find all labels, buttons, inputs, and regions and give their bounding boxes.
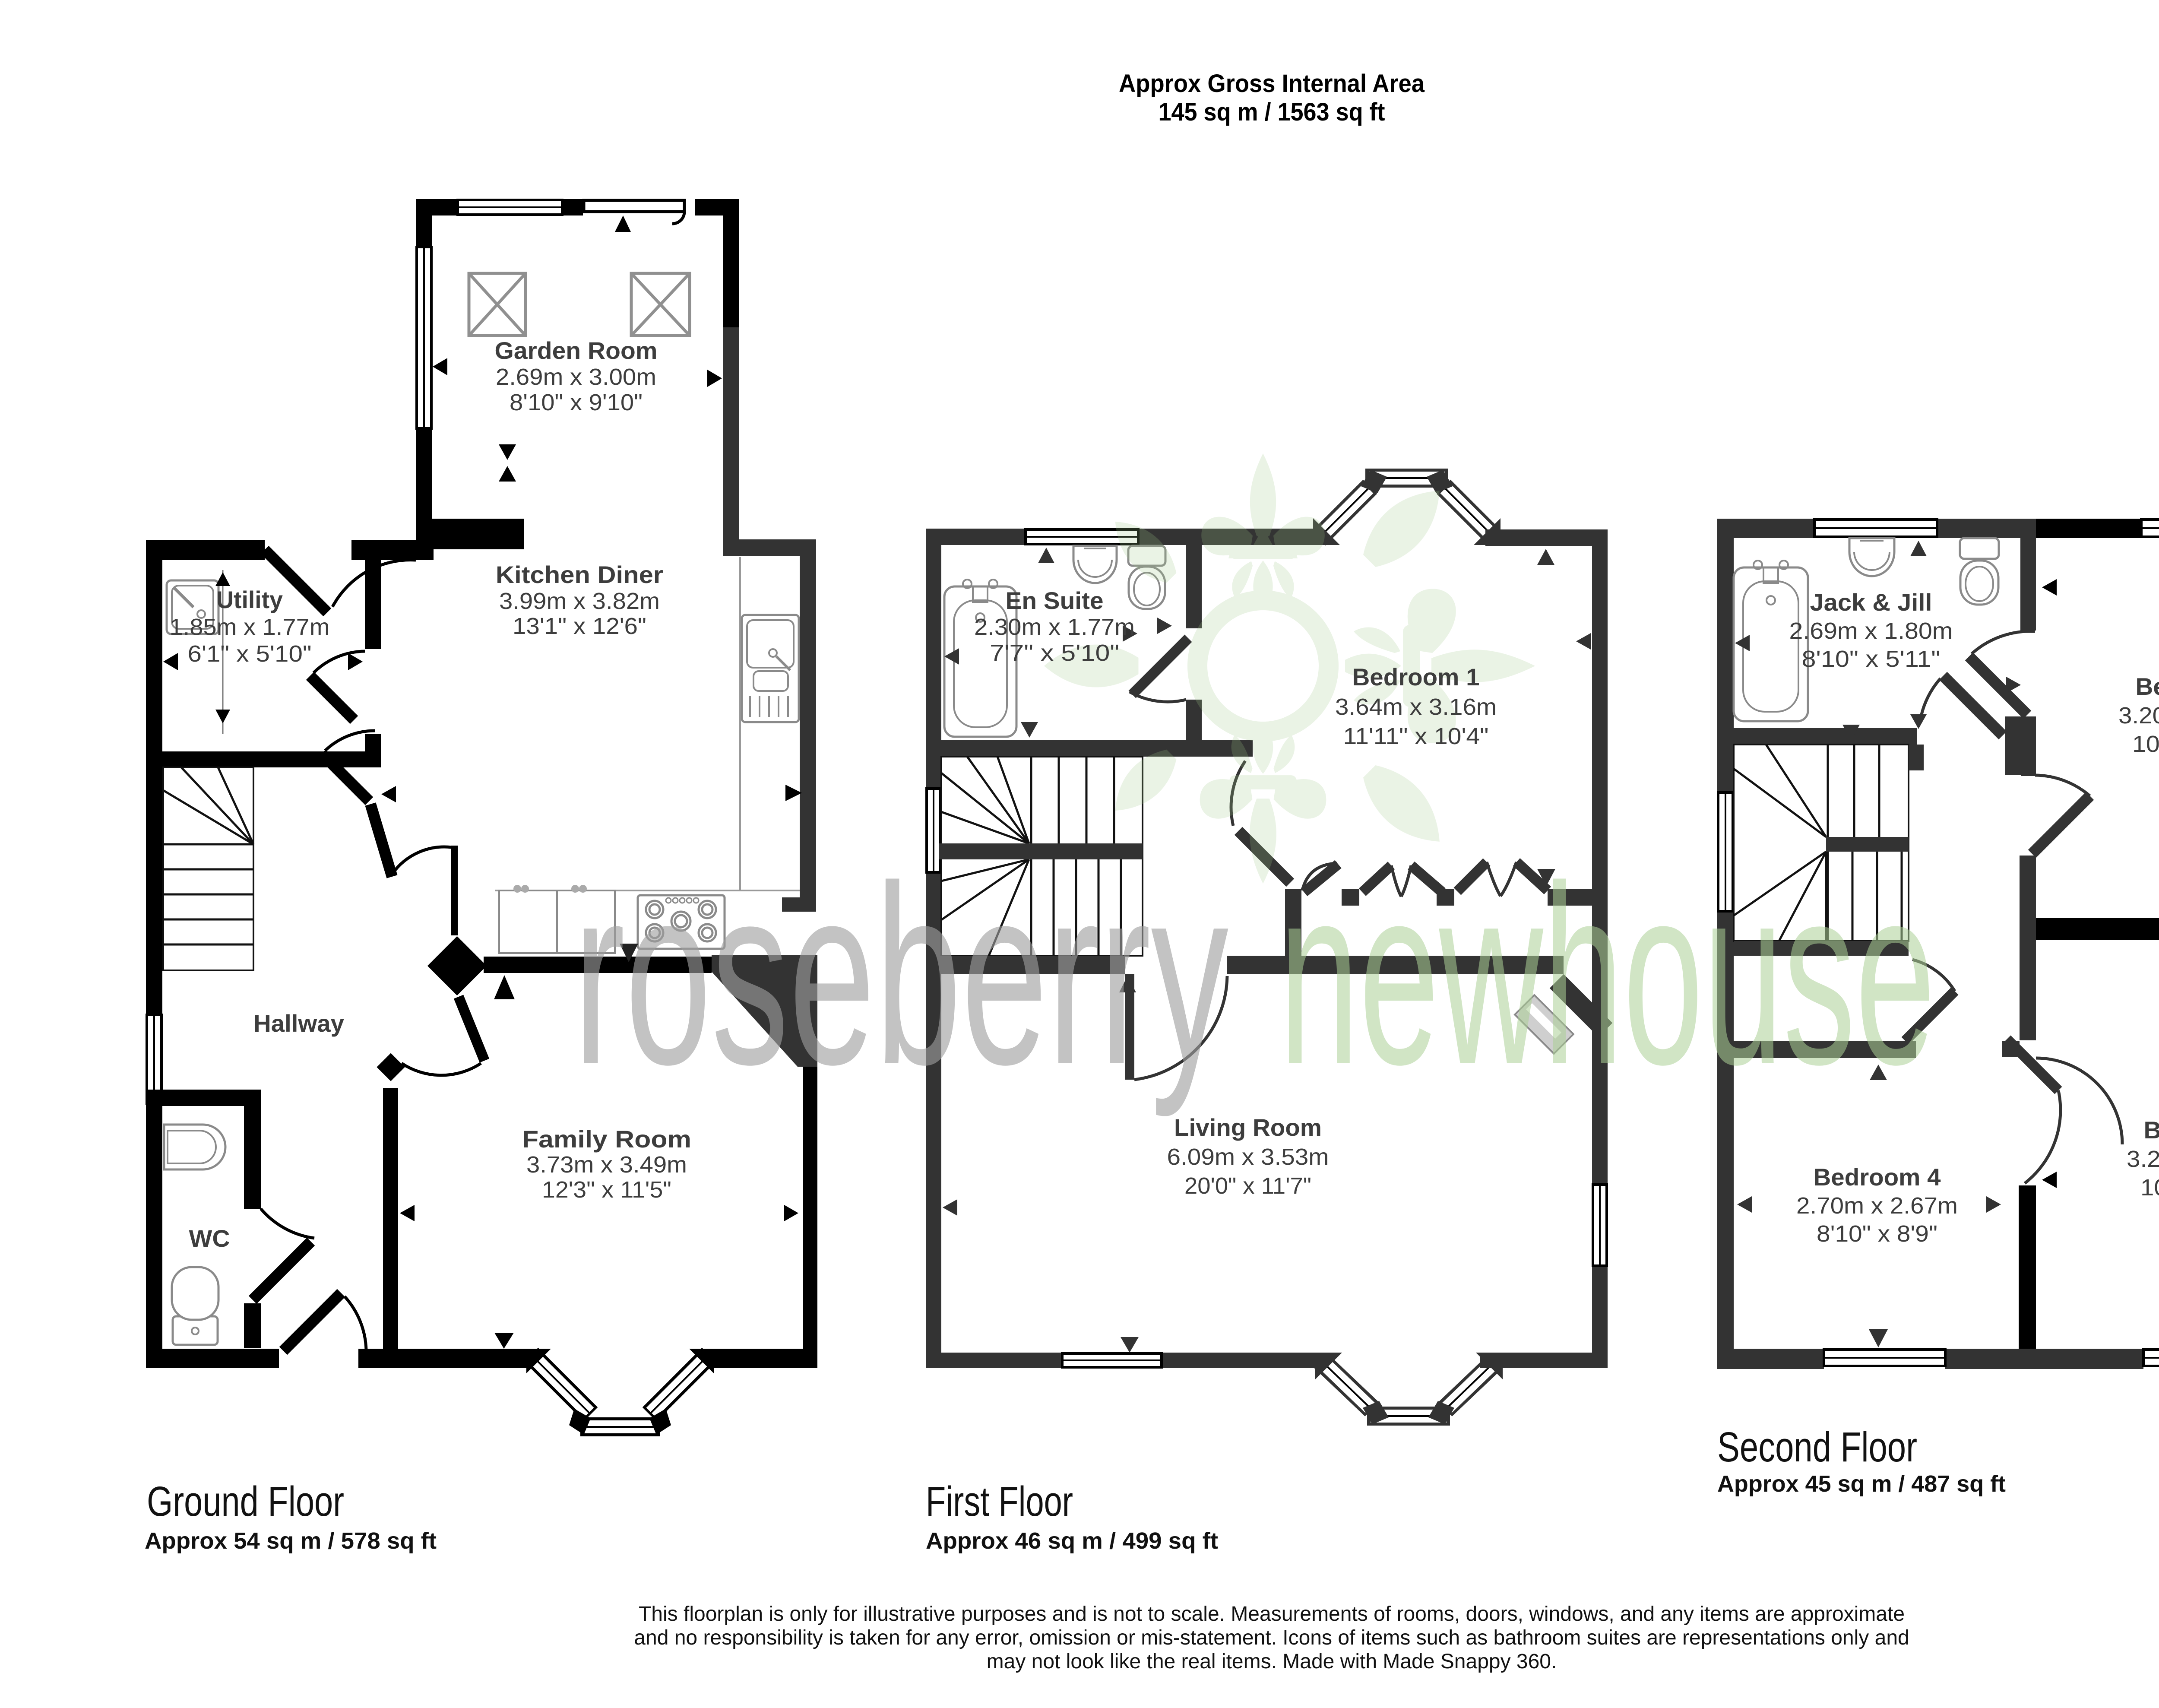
svg-text:First Floor: First Floor xyxy=(926,1478,1073,1525)
svg-text:3.20m x 3.55m: 3.20m x 3.55m xyxy=(2118,703,2159,729)
svg-text:Utility: Utility xyxy=(216,586,283,613)
svg-text:Approx 45 sq m / 487 sq ft: Approx 45 sq m / 487 sq ft xyxy=(1717,1471,2006,1497)
svg-text:may not look like the real ite: may not look like the real items. Made w… xyxy=(987,1650,1557,1673)
svg-text:Approx 54 sq m / 578 sq ft: Approx 54 sq m / 578 sq ft xyxy=(145,1528,437,1554)
svg-text:Ground Floor: Ground Floor xyxy=(147,1478,344,1525)
svg-text:2.69m x 1.80m: 2.69m x 1.80m xyxy=(1789,618,1953,644)
svg-text:Approx Gross Internal Area: Approx Gross Internal Area xyxy=(1119,70,1425,98)
svg-text:6.09m x 3.53m: 6.09m x 3.53m xyxy=(1167,1144,1329,1170)
svg-text:7'7" x 5'10": 7'7" x 5'10" xyxy=(990,640,1119,666)
svg-text:11'11" x 10'4": 11'11" x 10'4" xyxy=(1343,723,1489,749)
svg-text:and no responsibility is taken: and no responsibility is taken for any e… xyxy=(634,1626,1909,1649)
svg-text:Bedroom 2: Bedroom 2 xyxy=(2144,1116,2159,1144)
svg-text:1.85m x 1.77m: 1.85m x 1.77m xyxy=(170,614,330,640)
svg-text:2.30m x 1.77m: 2.30m x 1.77m xyxy=(974,614,1135,640)
svg-text:En Suite: En Suite xyxy=(1006,587,1104,614)
svg-text:13'1" x 12'6": 13'1" x 12'6" xyxy=(513,613,646,639)
svg-text:newhouse: newhouse xyxy=(1279,833,1935,1118)
svg-text:145 sq m / 1563 sq ft: 145 sq m / 1563 sq ft xyxy=(1159,98,1385,126)
svg-text:roseberry: roseberry xyxy=(573,833,1228,1119)
svg-text:8'10" x 9'10": 8'10" x 9'10" xyxy=(510,390,643,415)
svg-text:10'6" x 11'8": 10'6" x 11'8" xyxy=(2132,731,2159,757)
svg-text:Jack & Jill: Jack & Jill xyxy=(1810,589,1932,616)
svg-text:Second Floor: Second Floor xyxy=(1717,1423,1917,1470)
svg-text:10'6" x 12'3": 10'6" x 12'3" xyxy=(2140,1175,2159,1201)
svg-text:20'0" x 11'7": 20'0" x 11'7" xyxy=(1184,1173,1311,1199)
svg-text:Approx 46 sq m / 499 sq ft: Approx 46 sq m / 499 sq ft xyxy=(926,1528,1218,1554)
svg-text:2.69m x 3.00m: 2.69m x 3.00m xyxy=(496,364,656,390)
svg-text:3.99m x 3.82m: 3.99m x 3.82m xyxy=(499,588,660,614)
svg-text:8'10" x 8'9": 8'10" x 8'9" xyxy=(1817,1221,1937,1247)
svg-text:3.64m x 3.16m: 3.64m x 3.16m xyxy=(1335,694,1497,720)
svg-text:Family Room: Family Room xyxy=(522,1125,691,1153)
svg-text:Kitchen Diner: Kitchen Diner xyxy=(496,561,663,588)
svg-text:6'1" x 5'10": 6'1" x 5'10" xyxy=(188,641,312,667)
svg-text:3.20m x 3.73m: 3.20m x 3.73m xyxy=(2127,1146,2159,1172)
svg-text:12'3" x 11'5": 12'3" x 11'5" xyxy=(542,1177,671,1203)
svg-text:This floorplan is only for ill: This floorplan is only for illustrative … xyxy=(639,1603,1905,1626)
svg-text:Hallway: Hallway xyxy=(253,1010,344,1037)
svg-text:Living Room: Living Room xyxy=(1174,1114,1322,1141)
svg-text:Bedroom 4: Bedroom 4 xyxy=(1814,1163,1941,1191)
svg-text:Bedroom 3: Bedroom 3 xyxy=(2136,673,2159,700)
svg-text:WC: WC xyxy=(189,1225,230,1252)
svg-text:Garden Room: Garden Room xyxy=(495,337,658,364)
svg-text:8'10" x 5'11": 8'10" x 5'11" xyxy=(1802,646,1941,672)
svg-text:3.73m x 3.49m: 3.73m x 3.49m xyxy=(526,1152,687,1178)
svg-text:2.70m x 2.67m: 2.70m x 2.67m xyxy=(1796,1193,1958,1219)
svg-text:Bedroom 1: Bedroom 1 xyxy=(1352,663,1480,691)
